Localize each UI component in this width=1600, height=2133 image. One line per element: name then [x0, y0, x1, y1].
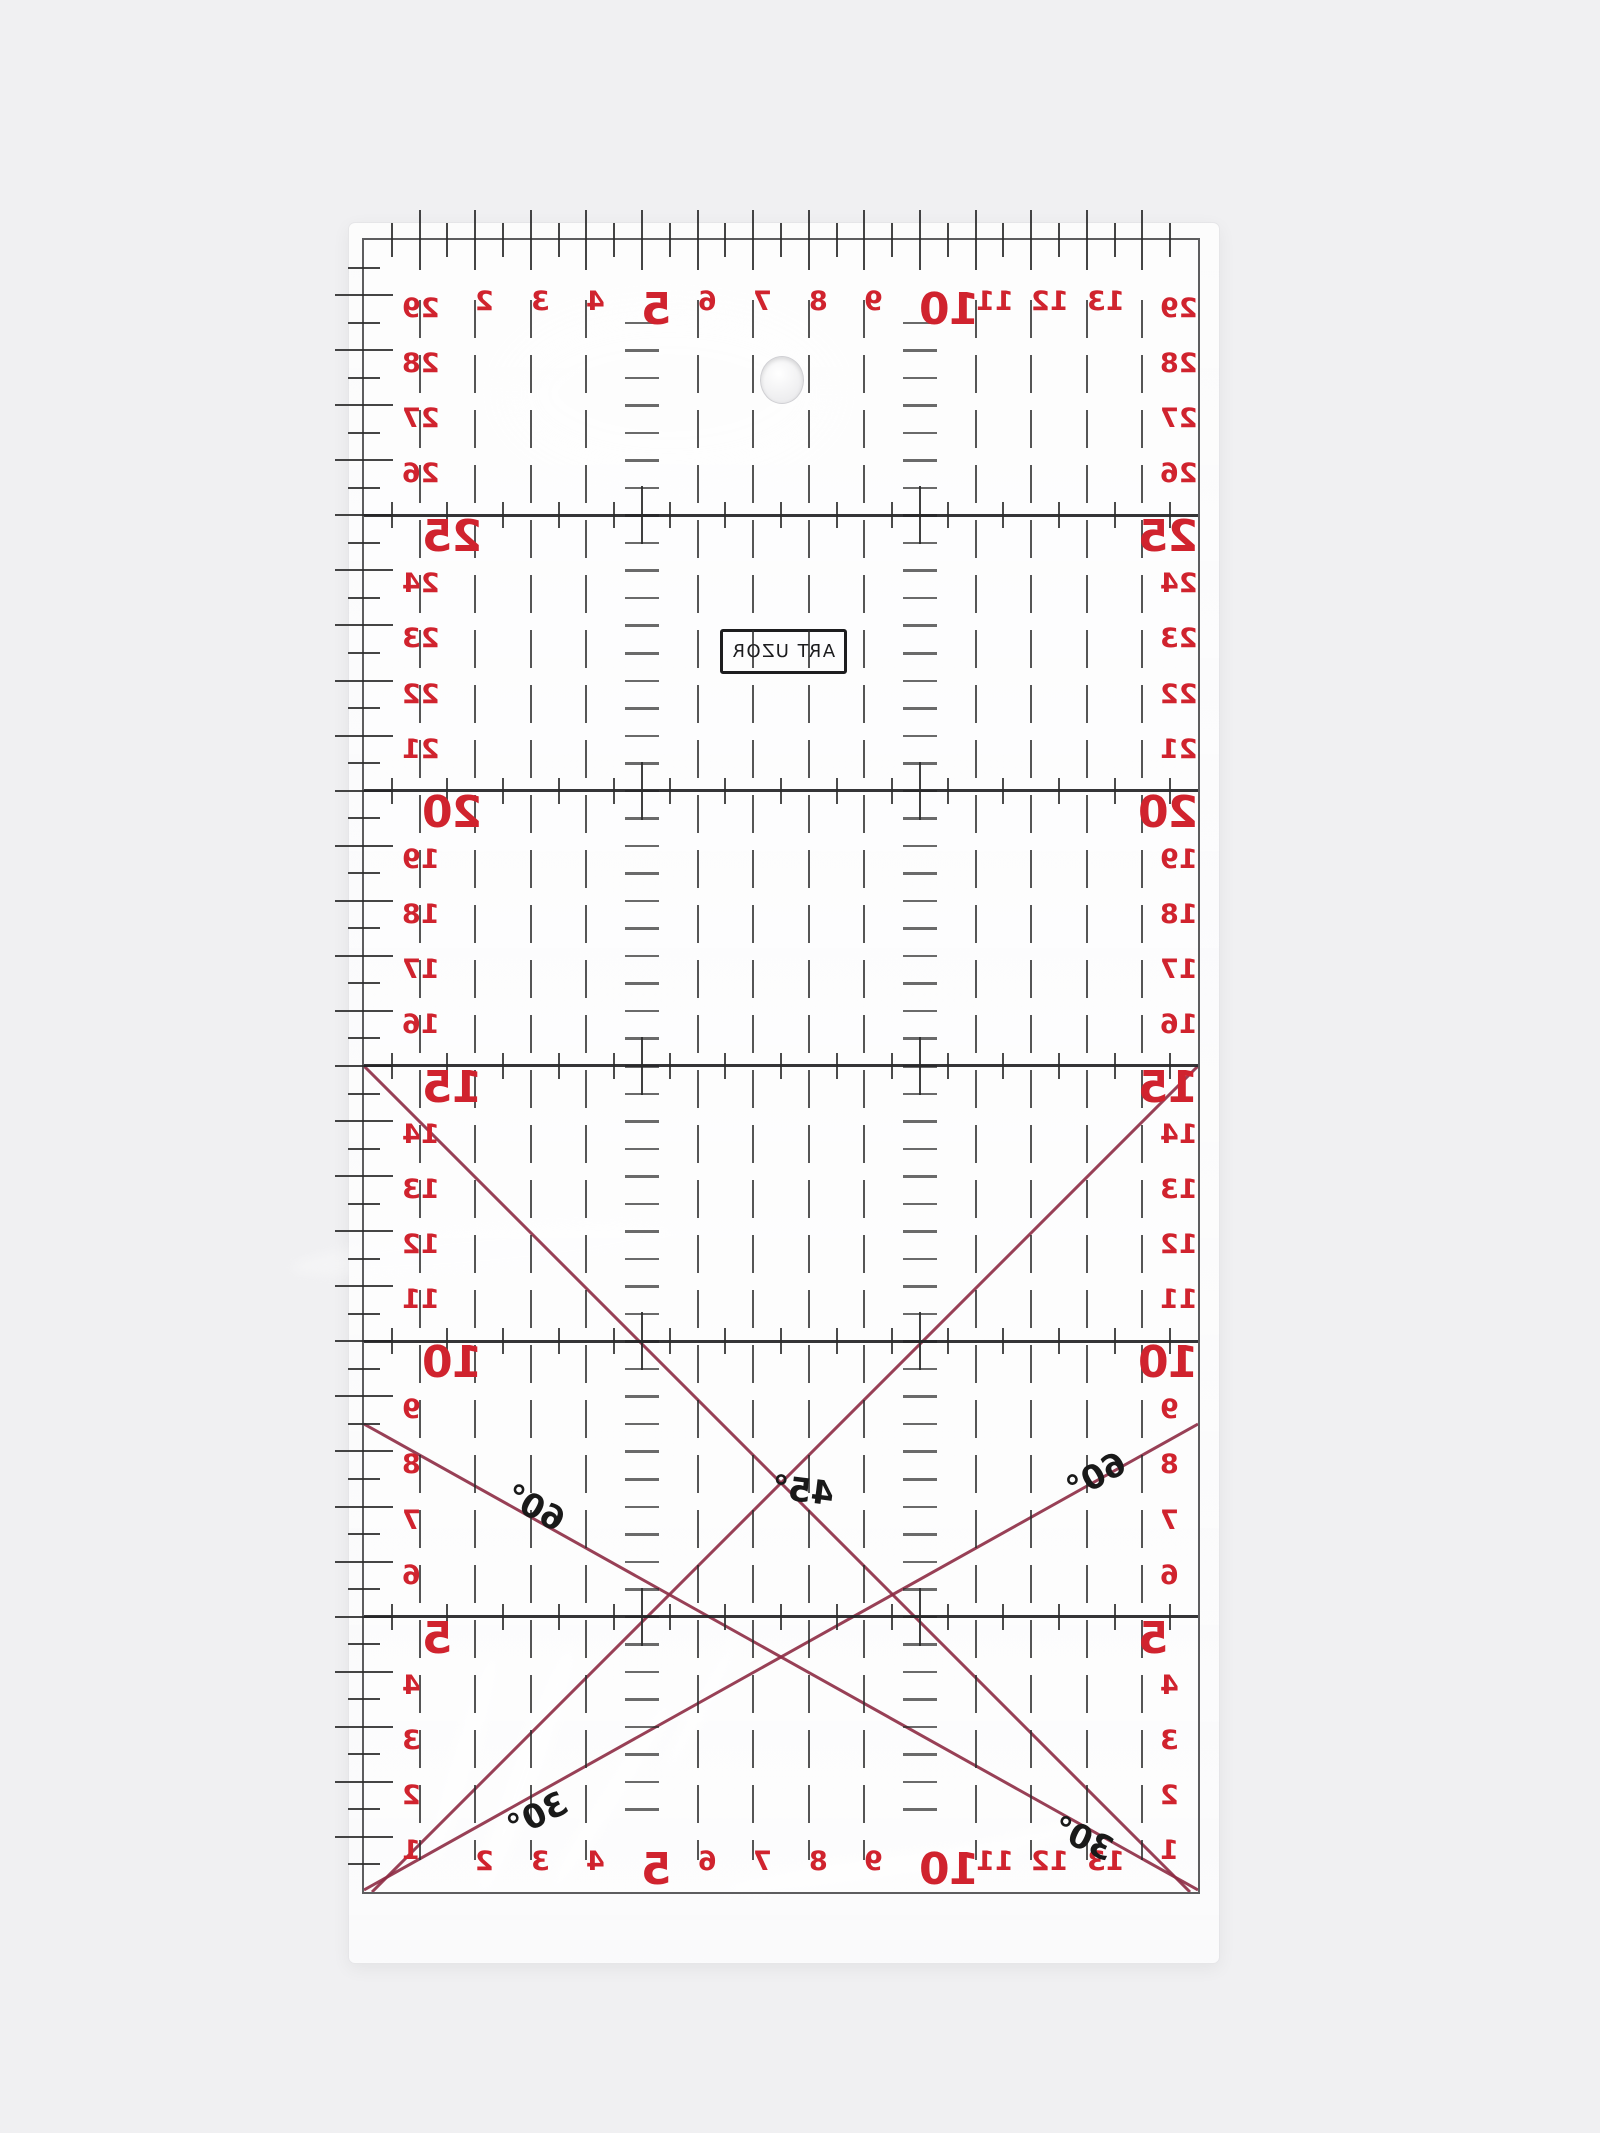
edge-tick-bottom	[391, 223, 393, 240]
half-cm-cross-tick	[836, 1604, 838, 1630]
edge-tick-right	[348, 1258, 364, 1260]
edge-tick-bottom	[947, 223, 949, 240]
scale-number: 25	[423, 515, 482, 559]
edge-tick-left	[364, 569, 393, 571]
half-cm-cross-tick	[1002, 778, 1004, 804]
edge-tick-bottom	[808, 210, 810, 240]
half-cm-cross-tick	[1114, 1053, 1116, 1079]
edge-tick-left	[364, 624, 393, 626]
edge-tick-bottom	[558, 223, 560, 240]
scale-number: 14	[402, 1121, 440, 1148]
half-cm-dash-column	[625, 1258, 659, 1261]
edge-tick-left	[364, 982, 380, 984]
edge-tick-left	[364, 1533, 380, 1535]
half-cm-cross-tick	[613, 1053, 615, 1079]
edge-tick-bottom	[419, 210, 421, 240]
half-cm-dash-column	[625, 1561, 659, 1564]
half-cm-dash-column	[903, 707, 937, 710]
scale-number: 24	[402, 570, 440, 597]
edge-tick-left	[364, 1808, 380, 1810]
edge-tick-right	[348, 817, 364, 819]
edge-tick-right	[335, 1285, 364, 1287]
half-cm-cross-tick	[1058, 778, 1060, 804]
brand-plate: ART UZOR	[720, 629, 847, 674]
scale-number: 1	[402, 1837, 421, 1864]
half-cm-dash-column	[903, 1120, 937, 1123]
half-cm-cross-tick	[891, 778, 893, 804]
hang-hole	[760, 356, 804, 404]
edge-tick-bottom	[530, 210, 532, 240]
edge-tick-top	[391, 240, 393, 257]
half-cm-dash-column	[625, 459, 659, 462]
grid-line-vertical	[863, 300, 865, 1860]
edge-tick-right	[348, 432, 364, 434]
scale-number: 3	[531, 1848, 550, 1875]
half-cm-dash-column	[625, 1175, 659, 1178]
half-cm-dash-column	[625, 900, 659, 903]
edge-tick-right	[348, 1808, 364, 1810]
edge-tick-right	[348, 1203, 364, 1205]
half-cm-cross-tick	[947, 502, 949, 528]
half-cm-cross-tick	[947, 778, 949, 804]
half-cm-cross-tick	[391, 778, 393, 804]
edge-tick-right	[348, 1478, 364, 1480]
half-cm-dash-column	[625, 1285, 659, 1288]
scale-number: 7	[753, 288, 772, 315]
edge-tick-right	[335, 1120, 364, 1122]
half-cm-dash-column	[903, 1395, 937, 1398]
half-cm-cross-tick	[1002, 1604, 1004, 1630]
half-cm-dash-column	[903, 900, 937, 903]
edge-tick-bottom	[502, 223, 504, 240]
half-cm-dash-column	[903, 1478, 937, 1481]
half-cm-cross-tick	[613, 502, 615, 528]
half-cm-dash-column	[903, 927, 937, 930]
edge-tick-right	[335, 1726, 364, 1728]
edge-tick-right	[335, 1230, 364, 1232]
half-cm-dash-column	[903, 597, 937, 600]
edge-tick-right	[348, 1368, 364, 1370]
edge-tick-right	[348, 1698, 364, 1700]
half-cm-dash-column	[625, 927, 659, 930]
edge-tick-top	[1114, 240, 1116, 257]
scale-number: 29	[402, 295, 440, 322]
half-cm-cross-tick	[780, 778, 782, 804]
half-cm-cross-tick	[1058, 1053, 1060, 1079]
scale-number: 8	[1160, 1451, 1179, 1478]
edge-tick-right	[335, 1065, 364, 1067]
half-cm-dash-column	[903, 1561, 937, 1564]
scale-number: 13	[402, 1176, 440, 1203]
edge-tick-left	[364, 1120, 393, 1122]
edge-tick-right	[335, 459, 364, 461]
grid-line-vertical	[585, 300, 587, 1860]
half-cm-cross-tick	[502, 502, 504, 528]
scale-number: 7	[753, 1848, 772, 1875]
edge-tick-right	[335, 624, 364, 626]
half-cm-dash-column	[903, 432, 937, 435]
half-cm-cross-tick	[391, 1053, 393, 1079]
edge-tick-right	[335, 514, 364, 516]
half-cm-cross-tick	[669, 1604, 671, 1630]
scale-number: 21	[1160, 736, 1198, 763]
half-cm-dash-column	[903, 1781, 937, 1784]
scale-number: 9	[864, 1848, 883, 1875]
edge-tick-top	[808, 240, 810, 270]
half-cm-dash-column	[903, 1753, 937, 1756]
edge-tick-left	[364, 927, 380, 929]
half-cm-cross-tick	[1002, 1328, 1004, 1354]
edge-tick-right	[335, 1340, 364, 1342]
half-cm-cross-tick	[724, 778, 726, 804]
grid-segment	[919, 1037, 922, 1095]
scale-number: 8	[809, 288, 828, 315]
edge-tick-left	[364, 377, 380, 379]
half-cm-cross-tick	[836, 1328, 838, 1354]
half-cm-cross-tick	[780, 1053, 782, 1079]
edge-tick-right	[335, 1010, 364, 1012]
scale-number: 13	[1160, 1176, 1198, 1203]
scale-number: 9	[864, 288, 883, 315]
half-cm-dash-column	[625, 1450, 659, 1453]
edge-tick-right	[335, 1395, 364, 1397]
edge-tick-right	[335, 404, 364, 406]
half-cm-dash-column	[625, 1506, 659, 1509]
edge-tick-bottom	[1030, 210, 1032, 240]
edge-tick-bottom	[975, 210, 977, 240]
half-cm-cross-tick	[613, 778, 615, 804]
edge-tick-top	[1086, 240, 1088, 270]
half-cm-dash-column	[903, 1671, 937, 1674]
edge-tick-left	[364, 404, 393, 406]
edge-tick-right	[335, 680, 364, 682]
half-cm-dash-column	[625, 652, 659, 655]
edge-tick-left	[364, 1230, 393, 1232]
scale-number: 11	[402, 1286, 440, 1313]
scale-number: 20	[423, 791, 482, 835]
edge-tick-top	[1141, 240, 1143, 270]
edge-tick-right	[335, 1781, 364, 1783]
edge-tick-right	[335, 294, 364, 296]
scale-number: 4	[586, 288, 605, 315]
scale-number: 9	[1160, 1396, 1179, 1423]
half-cm-cross-tick	[1002, 502, 1004, 528]
grid-line-vertical	[419, 300, 421, 1860]
scale-number: 9	[402, 1396, 421, 1423]
edge-tick-right	[348, 1753, 364, 1755]
scale-number: 22	[402, 681, 440, 708]
half-cm-cross-tick	[1114, 778, 1116, 804]
half-cm-cross-tick	[1058, 1328, 1060, 1354]
half-cm-dash-column	[903, 1726, 937, 1729]
half-cm-dash-column	[625, 432, 659, 435]
scale-number: 6	[1160, 1562, 1179, 1589]
edge-tick-right	[335, 790, 364, 792]
edge-tick-left	[364, 294, 393, 296]
half-cm-cross-tick	[836, 502, 838, 528]
edge-tick-bottom	[1169, 223, 1171, 240]
edge-tick-right	[335, 1616, 364, 1618]
half-cm-dash-column	[625, 1808, 659, 1811]
edge-tick-right	[335, 900, 364, 902]
grid-segment	[641, 762, 644, 820]
scale-number: 8	[402, 1451, 421, 1478]
quilting-ruler: ART UZOR 2345678910111213234567891011121…	[362, 238, 1200, 1894]
half-cm-dash-column	[625, 1148, 659, 1151]
edge-tick-left	[364, 1148, 380, 1150]
edge-tick-left	[364, 1643, 380, 1645]
edge-tick-right	[348, 1533, 364, 1535]
edge-tick-right	[348, 597, 364, 599]
edge-tick-left	[364, 652, 380, 654]
half-cm-cross-tick	[780, 1604, 782, 1630]
edge-tick-right	[335, 1175, 364, 1177]
scale-number: 5	[1139, 1617, 1169, 1661]
scale-number: 28	[1160, 350, 1198, 377]
grid-segment	[919, 1312, 922, 1370]
scale-number: 27	[402, 405, 440, 432]
edge-tick-left	[364, 267, 380, 269]
scale-number: 22	[1160, 681, 1198, 708]
half-cm-cross-tick	[947, 1604, 949, 1630]
scale-number: 11	[976, 288, 1014, 315]
grid-segment	[641, 486, 644, 544]
half-cm-dash-column	[625, 1395, 659, 1398]
half-cm-cross-tick	[1058, 502, 1060, 528]
grid-segment	[919, 486, 922, 544]
edge-tick-right	[348, 872, 364, 874]
edge-tick-left	[364, 1671, 393, 1673]
scale-number: 45°	[770, 1470, 836, 1510]
scale-number: 15	[423, 1066, 482, 1110]
edge-tick-right	[348, 1588, 364, 1590]
edge-tick-top	[419, 240, 421, 270]
scale-number: 7	[402, 1507, 421, 1534]
scale-number: 8	[809, 1848, 828, 1875]
edge-tick-left	[364, 1698, 380, 1700]
half-cm-dash-column	[625, 707, 659, 710]
scale-number: 27	[1160, 405, 1198, 432]
edge-tick-left	[364, 597, 380, 599]
half-cm-cross-tick	[558, 1328, 560, 1354]
half-cm-cross-tick	[724, 1328, 726, 1354]
half-cm-cross-tick	[724, 1604, 726, 1630]
edge-tick-left	[364, 1395, 393, 1397]
half-cm-cross-tick	[780, 502, 782, 528]
half-cm-cross-tick	[1114, 1328, 1116, 1354]
half-cm-cross-tick	[669, 1328, 671, 1354]
scale-number: 4	[1160, 1672, 1179, 1699]
scale-number: 18	[1160, 901, 1198, 928]
edge-tick-right	[348, 267, 364, 269]
scale-number: 15	[1139, 1066, 1198, 1110]
edge-tick-left	[364, 1588, 380, 1590]
half-cm-cross-tick	[724, 1053, 726, 1079]
half-cm-cross-tick	[502, 1053, 504, 1079]
edge-tick-left	[364, 542, 380, 544]
edge-tick-bottom	[724, 223, 726, 240]
scale-number: 16	[1160, 1011, 1198, 1038]
edge-tick-bottom	[891, 223, 893, 240]
edge-tick-left	[364, 1368, 380, 1370]
edge-tick-top	[891, 240, 893, 257]
edge-tick-top	[975, 240, 977, 270]
edge-tick-top	[1169, 240, 1171, 257]
half-cm-cross-tick	[669, 502, 671, 528]
half-cm-dash-column	[625, 349, 659, 352]
half-cm-cross-tick	[891, 1053, 893, 1079]
half-cm-dash-column	[903, 735, 937, 738]
edge-tick-left	[364, 1726, 393, 1728]
edge-tick-bottom	[669, 223, 671, 240]
half-cm-cross-tick	[391, 1328, 393, 1354]
half-cm-dash-column	[903, 377, 937, 380]
scale-number: 19	[402, 846, 440, 873]
edge-tick-top	[863, 240, 865, 270]
edge-tick-right	[348, 1643, 364, 1645]
edge-tick-left	[364, 762, 380, 764]
half-cm-dash-column	[903, 349, 937, 352]
scale-number: 21	[402, 736, 440, 763]
half-cm-dash-column	[903, 1230, 937, 1233]
scale-number: 10	[920, 1848, 979, 1892]
edge-tick-bottom	[641, 210, 643, 240]
scale-number: 4	[586, 1848, 605, 1875]
edge-tick-right	[348, 927, 364, 929]
grid-segment	[641, 1312, 644, 1370]
grid-line-vertical	[697, 300, 699, 1860]
scale-number: 6	[698, 288, 717, 315]
scale-number: 28	[402, 350, 440, 377]
edge-tick-left	[364, 845, 393, 847]
scale-number: 10	[920, 288, 979, 332]
edge-tick-top	[836, 240, 838, 257]
edge-tick-top	[919, 240, 921, 270]
grid-segment	[919, 762, 922, 820]
edge-tick-left	[364, 1285, 393, 1287]
half-cm-dash-column	[903, 1533, 937, 1536]
edge-tick-right	[348, 982, 364, 984]
grid-line-vertical	[975, 300, 977, 1860]
scale-number: 12	[402, 1231, 440, 1258]
scale-number: 12	[1031, 288, 1069, 315]
half-cm-dash-column	[625, 845, 659, 848]
edge-tick-bottom	[446, 223, 448, 240]
edge-tick-right	[348, 487, 364, 489]
edge-tick-left	[364, 735, 393, 737]
edge-tick-left	[364, 1423, 380, 1425]
edge-tick-left	[364, 1506, 393, 1508]
edge-tick-top	[780, 240, 782, 257]
half-cm-cross-tick	[613, 1604, 615, 1630]
edge-tick-left	[364, 1203, 380, 1205]
half-cm-dash-column	[903, 459, 937, 462]
scale-number: 20	[1139, 791, 1198, 835]
half-cm-cross-tick	[558, 502, 560, 528]
scale-number: 18	[402, 901, 440, 928]
scale-number: 17	[1160, 956, 1198, 983]
edge-tick-bottom	[1086, 210, 1088, 240]
half-cm-dash-column	[625, 404, 659, 407]
half-cm-cross-tick	[947, 1053, 949, 1079]
edge-tick-right	[335, 1836, 364, 1838]
edge-tick-bottom	[585, 210, 587, 240]
edge-tick-top	[1058, 240, 1060, 257]
edge-tick-right	[348, 1863, 364, 1865]
grid-segment	[641, 1588, 644, 1646]
half-cm-dash-column	[625, 982, 659, 985]
edge-tick-right	[348, 322, 364, 324]
edge-tick-bottom	[474, 210, 476, 240]
edge-tick-left	[364, 1010, 393, 1012]
half-cm-dash-column	[625, 1203, 659, 1206]
edge-tick-right	[335, 735, 364, 737]
scale-number: 7	[1160, 1507, 1179, 1534]
half-cm-cross-tick	[502, 778, 504, 804]
half-cm-dash-column	[903, 872, 937, 875]
scale-number: 23	[402, 625, 440, 652]
half-cm-dash-column	[625, 597, 659, 600]
grid-segment	[641, 1037, 644, 1095]
half-cm-dash-column	[903, 652, 937, 655]
half-cm-cross-tick	[1058, 1604, 1060, 1630]
grid-line-vertical	[1030, 300, 1032, 1860]
half-cm-dash-column	[903, 569, 937, 572]
edge-tick-left	[364, 1258, 380, 1260]
edge-tick-top	[697, 240, 699, 270]
grid-line-vertical	[808, 300, 810, 1860]
edge-tick-right	[335, 955, 364, 957]
edge-tick-bottom	[697, 210, 699, 240]
scale-number: 2	[402, 1782, 421, 1809]
half-cm-dash-column	[903, 955, 937, 958]
scale-number: 6	[402, 1562, 421, 1589]
edge-tick-left	[364, 432, 380, 434]
half-cm-cross-tick	[947, 1328, 949, 1354]
half-cm-dash-column	[625, 680, 659, 683]
half-cm-cross-tick	[891, 1328, 893, 1354]
edge-tick-left	[364, 349, 393, 351]
edge-tick-right	[348, 377, 364, 379]
edge-tick-left	[364, 1450, 393, 1452]
half-cm-cross-tick	[836, 778, 838, 804]
half-cm-cross-tick	[1002, 1053, 1004, 1079]
edge-tick-top	[669, 240, 671, 257]
edge-tick-right	[335, 1450, 364, 1452]
half-cm-cross-tick	[836, 1053, 838, 1079]
grid-segment	[919, 1588, 922, 1646]
edge-tick-top	[641, 240, 643, 270]
edge-tick-left	[364, 1037, 380, 1039]
half-cm-dash-column	[903, 982, 937, 985]
edge-tick-top	[530, 240, 532, 270]
half-cm-cross-tick	[502, 1328, 504, 1354]
half-cm-dash-column	[625, 955, 659, 958]
scale-number: 5	[642, 288, 672, 332]
half-cm-dash-column	[903, 1506, 937, 1509]
scale-number: 16	[402, 1011, 440, 1038]
edge-tick-top	[613, 240, 615, 257]
half-cm-dash-column	[903, 1285, 937, 1288]
scale-number: 11	[1160, 1286, 1198, 1313]
half-cm-dash-column	[903, 1175, 937, 1178]
edge-tick-bottom	[863, 210, 865, 240]
half-cm-dash-column	[625, 1478, 659, 1481]
edge-tick-right	[335, 1671, 364, 1673]
scale-number: 5	[423, 1617, 453, 1661]
edge-tick-right	[335, 1506, 364, 1508]
edge-tick-left	[364, 955, 393, 957]
